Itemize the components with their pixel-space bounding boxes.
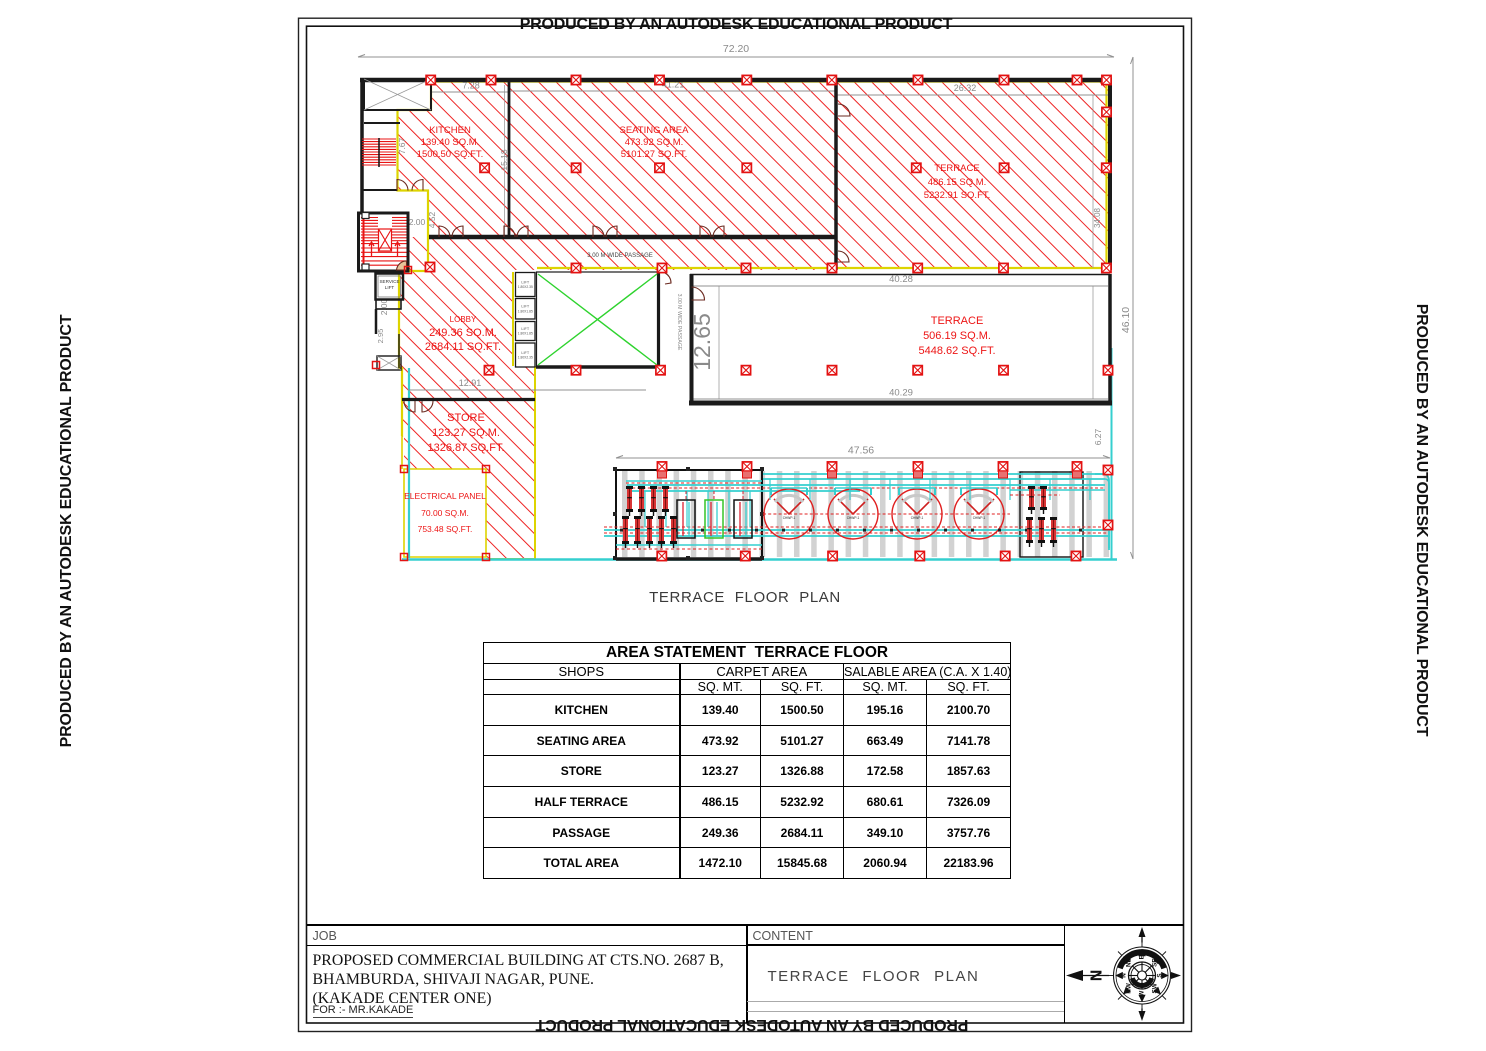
svg-text:753.48 SQ.FT.: 753.48 SQ.FT. [418, 524, 473, 534]
svg-text:KITCHEN: KITCHEN [429, 125, 471, 136]
svg-text:TERRACE FLOOR PLAN: TERRACE FLOOR PLAN [649, 589, 841, 606]
svg-text:34.08: 34.08 [1093, 207, 1102, 228]
svg-text:CHWP-1: CHWP-1 [973, 516, 986, 520]
svg-text:LIFT: LIFT [521, 351, 529, 355]
svg-text:1.80X2.35: 1.80X2.35 [518, 285, 533, 289]
svg-text:6.27: 6.27 [1093, 428, 1103, 445]
svg-text:N: N [1120, 973, 1127, 978]
svg-text:12.91: 12.91 [459, 378, 482, 388]
svg-text:E: E [1139, 955, 1146, 959]
svg-text:2.00: 2.00 [379, 298, 389, 315]
svg-text:TERRACE: TERRACE [931, 315, 984, 327]
svg-text:SERVICE: SERVICE [379, 279, 399, 284]
svg-text:SE: SE [1151, 958, 1158, 966]
svg-text:CHWP-1: CHWP-1 [847, 516, 860, 520]
svg-text:LIFT: LIFT [521, 305, 529, 309]
svg-text:139.40 SQ.M.: 139.40 SQ.M. [421, 137, 480, 148]
svg-text:ELECTRICAL PANEL: ELECTRICAL PANEL [404, 491, 486, 501]
svg-text:S: S [1157, 973, 1164, 977]
svg-text:3.00 M WIDE PASSAGE: 3.00 M WIDE PASSAGE [676, 294, 682, 351]
svg-text:N: N [1089, 970, 1106, 982]
svg-text:TERRACE: TERRACE [934, 163, 979, 174]
svg-text:5232.91 SQ.FT.: 5232.91 SQ.FT. [924, 190, 991, 201]
svg-text:40.28: 40.28 [889, 274, 913, 285]
svg-text:47.56: 47.56 [848, 445, 874, 457]
svg-text:123.27 SQ.M.: 123.27 SQ.M. [432, 427, 500, 439]
svg-text:70.00 SQ.M.: 70.00 SQ.M. [421, 508, 469, 518]
svg-text:NW: NW [1126, 983, 1133, 994]
svg-text:249.36 SQ.M.: 249.36 SQ.M. [429, 327, 497, 339]
svg-text:STORE: STORE [447, 412, 485, 424]
svg-text:46.10: 46.10 [1120, 307, 1132, 333]
svg-text:1.80X1.85: 1.80X1.85 [518, 309, 533, 313]
svg-text:4.52: 4.52 [427, 211, 437, 228]
svg-text:1.80X1.85: 1.80X1.85 [518, 332, 533, 336]
svg-text:LIFT: LIFT [521, 327, 529, 331]
svg-text:15.18: 15.18 [499, 149, 509, 171]
svg-text:W: W [1139, 991, 1146, 997]
svg-text:2.95: 2.95 [376, 329, 385, 344]
svg-text:LOBBY: LOBBY [450, 315, 477, 324]
svg-text:1500.50 SQ.FT.: 1500.50 SQ.FT. [417, 149, 484, 160]
svg-text:72.20: 72.20 [723, 43, 749, 55]
svg-text:1326.87 SQ.FT.: 1326.87 SQ.FT. [427, 442, 504, 454]
svg-text:26.32: 26.32 [954, 83, 977, 93]
svg-text:506.19 SQ.M.: 506.19 SQ.M. [923, 330, 991, 342]
svg-text:486.15 SQ.M.: 486.15 SQ.M. [928, 177, 987, 188]
svg-text:CHWP-1: CHWP-1 [783, 516, 796, 520]
svg-text:5101.27 SQ.FT.: 5101.27 SQ.FT. [621, 149, 688, 160]
svg-text:CHWP-1: CHWP-1 [911, 516, 924, 520]
svg-text:SW: SW [1151, 983, 1158, 993]
svg-text:LIFT: LIFT [521, 280, 529, 284]
svg-text:5448.62 SQ.FT.: 5448.62 SQ.FT. [918, 345, 995, 357]
svg-text:SEATING AREA: SEATING AREA [620, 125, 690, 136]
svg-text:473.92 SQ.M.: 473.92 SQ.M. [625, 137, 684, 148]
svg-text:7.67: 7.67 [397, 137, 407, 154]
svg-text:40.29: 40.29 [889, 388, 913, 399]
svg-text:2684.11 SQ.FT.: 2684.11 SQ.FT. [425, 341, 501, 353]
svg-text:2.00: 2.00 [409, 217, 426, 227]
svg-text:3.00 M WIDE PASSAGE: 3.00 M WIDE PASSAGE [587, 253, 653, 259]
svg-text:NE: NE [1126, 958, 1133, 967]
svg-text:LIFT: LIFT [385, 285, 395, 290]
svg-text:1.80X2.35: 1.80X2.35 [518, 356, 533, 360]
